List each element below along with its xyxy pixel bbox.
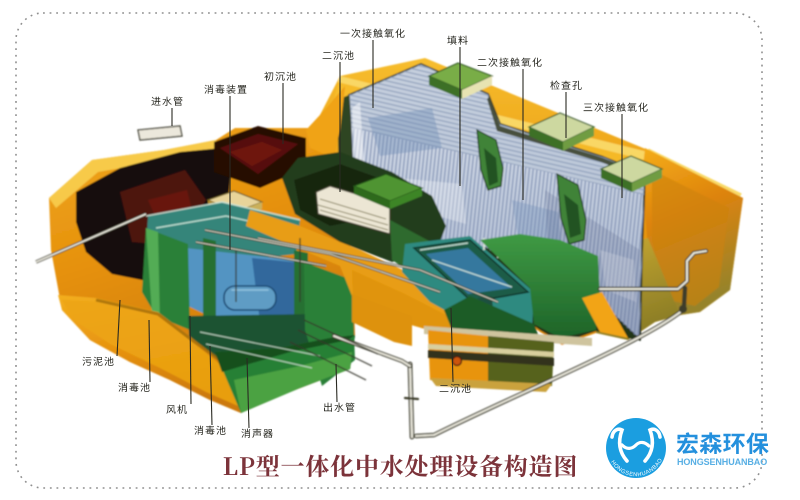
svg-text:HONGSENHUANBAO: HONGSENHUANBAO	[677, 457, 767, 467]
